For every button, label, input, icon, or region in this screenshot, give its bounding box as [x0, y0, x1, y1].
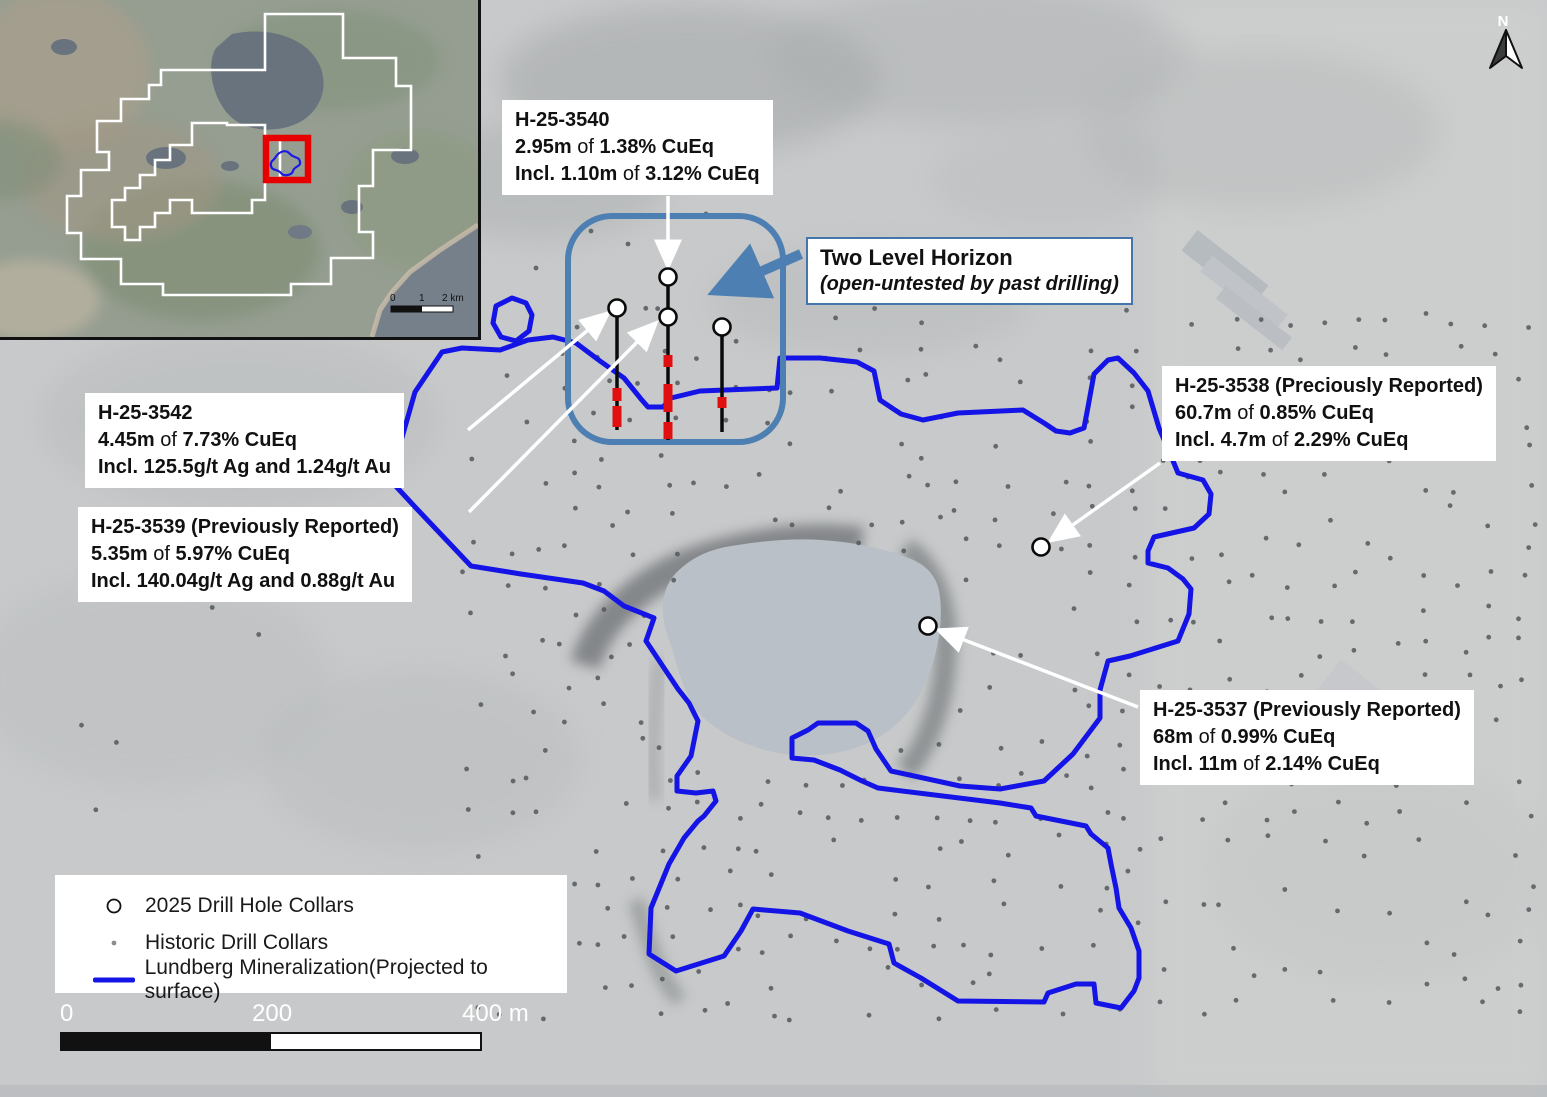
- historic-collar-dot: [1265, 818, 1270, 823]
- historic-collar-dot: [919, 347, 924, 352]
- historic-collar-dot: [907, 474, 912, 479]
- historic-collar-dot: [575, 325, 580, 330]
- historic-collar-dot: [541, 1017, 546, 1022]
- historic-collar-dot: [1517, 779, 1522, 784]
- historic-collar-dot: [1130, 488, 1135, 493]
- callout-h-25-3540: H-25-3540 2.95m of 1.38% CuEq Incl. 1.10…: [502, 100, 773, 195]
- scalebar-bar: [60, 1032, 482, 1051]
- historic-collar-dot: [971, 980, 976, 985]
- mineralized-interval: [664, 384, 673, 412]
- historic-collar-dot: [1064, 773, 1069, 778]
- historic-collar-dot: [769, 986, 774, 991]
- historic-collar-dot: [905, 378, 910, 383]
- historic-collar-dot: [1105, 886, 1110, 891]
- historic-collar-dot: [1218, 470, 1223, 475]
- historic-collar-dot: [1318, 970, 1323, 975]
- historic-collar-dot: [992, 878, 997, 883]
- historic-collar-dot: [534, 266, 539, 271]
- inset-location-map: 0 1 2 km: [0, 0, 481, 340]
- historic-collar-dot: [1087, 543, 1092, 548]
- historic-collar-dot: [734, 339, 739, 344]
- historic-collar-dot: [1202, 1012, 1207, 1017]
- historic-collar-dot: [589, 229, 594, 234]
- historic-collar-dot: [534, 809, 539, 814]
- historic-collar-dot: [1059, 884, 1064, 889]
- historic-collar-dot: [540, 638, 545, 643]
- historic-collar-dot: [673, 416, 678, 421]
- historic-collar-dot: [757, 472, 762, 477]
- historic-collar-dot: [464, 767, 469, 772]
- historic-collar-dot: [925, 483, 930, 488]
- historic-collar-dot: [597, 485, 602, 490]
- historic-collar-dot: [1531, 884, 1536, 889]
- inset-satellite-basemap: [0, 0, 478, 337]
- mineralization-line-icon: [83, 976, 145, 984]
- historic-collar-dot: [826, 815, 831, 820]
- historic-collar-dot: [769, 872, 774, 877]
- historic-collar-dot: [895, 815, 900, 820]
- legend-label: Lundberg Mineralization(Projected to sur…: [145, 956, 567, 1004]
- historic-collar-dot: [659, 1011, 664, 1016]
- historic-collar-dot: [1480, 999, 1485, 1004]
- historic-collar-dot: [760, 950, 765, 955]
- historic-collar-dot: [1120, 709, 1125, 714]
- historic-collar-dot: [919, 320, 924, 325]
- historic-collar-dot: [1299, 673, 1304, 678]
- historic-collar-dot: [557, 642, 562, 647]
- historic-collar-dot: [708, 907, 713, 912]
- historic-collar-dot: [1455, 583, 1460, 588]
- historic-collar-dot: [937, 917, 942, 922]
- historic-collar-dot: [1089, 349, 1094, 354]
- historic-collar-dot: [572, 439, 577, 444]
- historic-collar-dot: [1332, 584, 1337, 589]
- historic-collar-dot: [703, 1008, 708, 1013]
- historic-collar-dot: [1323, 839, 1328, 844]
- historic-collar-dot: [622, 934, 627, 939]
- historic-collar-dot: [661, 849, 666, 854]
- historic-collar-dot: [869, 523, 874, 528]
- included-intercept-line: Incl. 1.10m of 3.12% CuEq: [515, 161, 760, 188]
- historic-collar-dot: [1138, 847, 1143, 852]
- historic-collar-dot: [510, 552, 515, 557]
- historic-collar-dot: [591, 411, 596, 416]
- historic-collar-dot: [510, 671, 515, 676]
- historic-collar-dot: [1486, 913, 1491, 918]
- historic-collar-dot: [1085, 754, 1090, 759]
- historic-collar-dot: [900, 520, 905, 525]
- historic-collar-dot: [1002, 902, 1007, 907]
- historic-collar-dot: [665, 905, 670, 910]
- scalebar-label-0: 0: [60, 1000, 73, 1028]
- historic-collar-dot: [1098, 908, 1103, 913]
- historic-collar-dot: [675, 552, 680, 557]
- svg-text:2 km: 2 km: [442, 293, 464, 304]
- historic-collar-dot: [1135, 619, 1140, 624]
- historic-collar-dot: [1317, 654, 1322, 659]
- historic-collar-dot: [503, 654, 508, 659]
- drill-hole-id: H-25-3542: [98, 400, 391, 427]
- historic-collar-dot: [838, 489, 843, 494]
- historic-collar-dot: [1388, 556, 1393, 561]
- historic-collar-dot: [1219, 552, 1224, 557]
- historic-collar-dot: [738, 816, 743, 821]
- historic-collar-dot: [1328, 518, 1333, 523]
- scalebar-label-200: 200: [252, 1000, 292, 1028]
- historic-collar-dot: [595, 676, 600, 681]
- historic-collar-dot: [1163, 899, 1168, 904]
- historic-collar-dot: [1353, 345, 1358, 350]
- historic-collar-dot: [629, 983, 634, 988]
- historic-collar-dot: [1464, 899, 1469, 904]
- historic-collar-dot: [738, 903, 743, 908]
- historic-collar-dot: [573, 506, 578, 511]
- intercept-line: 60.7m of 0.85% CuEq: [1175, 400, 1483, 427]
- historic-collar-dot: [1523, 573, 1528, 578]
- historic-collar-dot: [1223, 800, 1228, 805]
- historic-collar-dot: [1089, 786, 1094, 791]
- historic-collar-dot: [1019, 771, 1024, 776]
- historic-collar-dot: [872, 306, 877, 311]
- historic-collar-dot: [1423, 488, 1428, 493]
- historic-collar-dot: [724, 418, 729, 423]
- historic-collar-dot: [964, 536, 969, 541]
- historic-collar-dot: [511, 779, 516, 784]
- historic-collar-dot: [1018, 653, 1023, 658]
- historic-collar-dot: [987, 685, 992, 690]
- historic-collar-dot: [1489, 569, 1494, 574]
- historic-collar-dot: [1486, 635, 1491, 640]
- historic-collar-dot: [1322, 320, 1327, 325]
- historic-collar-dot: [993, 518, 998, 523]
- historic-collar-dot: [1498, 684, 1503, 689]
- historic-collar-dot: [695, 770, 700, 775]
- historic-collar-dot: [660, 977, 665, 982]
- historic-collar-dot: [1086, 703, 1091, 708]
- historic-collar-dot: [754, 849, 759, 854]
- historic-collar-dot: [1526, 907, 1531, 912]
- historic-collar-dot: [572, 471, 577, 476]
- historic-collar-dot: [599, 457, 604, 462]
- historic-collar-dot: [1298, 357, 1303, 362]
- historic-collar-dot: [994, 1007, 999, 1012]
- historic-collar-dot: [1518, 939, 1523, 944]
- historic-collar-dot: [1006, 484, 1011, 489]
- historic-collar-dot: [635, 381, 640, 386]
- historic-collar-dot: [1285, 585, 1290, 590]
- mineralized-interval: [613, 406, 622, 427]
- svg-text:0: 0: [390, 293, 396, 304]
- historic-collar-dot: [1234, 998, 1239, 1003]
- historic-collar-dot: [1353, 570, 1358, 575]
- historic-collar-dot: [867, 1013, 872, 1018]
- historic-collar-dot: [655, 306, 660, 311]
- historic-collar-dot: [562, 543, 567, 548]
- historic-collar-dot: [1158, 836, 1163, 841]
- historic-collar-dot: [840, 783, 845, 788]
- historic-collar-dot: [596, 942, 601, 947]
- historic-collar-dot: [1134, 349, 1139, 354]
- historic-collar-dot: [1296, 542, 1301, 547]
- historic-collar-dot: [919, 456, 924, 461]
- historic-collar-dot: [1533, 522, 1538, 527]
- historic-collar-dot: [1227, 579, 1232, 584]
- historic-collar-dot: [759, 802, 764, 807]
- historic-collar-dot: [643, 306, 648, 311]
- historic-collar-dot: [935, 816, 940, 821]
- historic-collar-dot: [1040, 739, 1045, 744]
- historic-collar-dot: [93, 807, 98, 812]
- historic-collar-dot: [1006, 853, 1011, 858]
- historic-collar-dot: [525, 420, 530, 425]
- historic-collar-dot: [1190, 556, 1195, 561]
- historic-collar-dot: [667, 483, 672, 488]
- historic-collar-dot: [630, 876, 635, 881]
- historic-collar-dot: [1425, 941, 1430, 946]
- historic-collar-dot: [1163, 506, 1168, 511]
- historic-collar-dot: [671, 578, 676, 583]
- historic-collar-dot: [1482, 323, 1487, 328]
- historic-collar-dot: [596, 883, 601, 888]
- collar-historic-icon: [83, 934, 145, 952]
- historic-collar-dot: [1423, 639, 1428, 644]
- historic-collar-dot: [886, 965, 891, 970]
- historic-collar-dot: [1362, 854, 1367, 859]
- historic-collar-dot: [1285, 616, 1290, 621]
- historic-collar-dot: [1526, 545, 1531, 550]
- historic-collar-dot: [476, 854, 481, 859]
- historic-collar-dot: [1529, 814, 1534, 819]
- historic-collar-dot: [787, 1018, 792, 1023]
- historic-collar-dot: [1494, 717, 1499, 722]
- historic-collar-dot: [114, 740, 119, 745]
- historic-collar-dot: [1018, 380, 1023, 385]
- historic-collar-dot: [833, 316, 838, 321]
- historic-collar-dot: [543, 586, 548, 591]
- historic-collar-dot: [471, 540, 476, 545]
- historic-collar-dot: [1124, 308, 1129, 313]
- historic-collar-dot: [1350, 619, 1355, 624]
- historic-collar-dot: [1162, 967, 1167, 972]
- legend-item-mineralization: Lundberg Mineralization(Projected to sur…: [83, 963, 567, 997]
- historic-collar-dot: [1095, 651, 1100, 656]
- historic-collar-dot: [659, 453, 664, 458]
- historic-collar-dot: [627, 418, 632, 423]
- historic-collar-dot: [788, 441, 793, 446]
- historic-collar-dot: [756, 913, 761, 918]
- historic-collar-dot: [1059, 547, 1064, 552]
- mineralized-interval: [664, 422, 673, 439]
- historic-collar-dot: [1106, 810, 1111, 815]
- historic-collar-dot: [603, 985, 608, 990]
- historic-collar-dot: [536, 547, 541, 552]
- historic-collar-dot: [1282, 490, 1287, 495]
- historic-collar-dot: [1396, 641, 1401, 646]
- historic-collar-dot: [1322, 472, 1327, 477]
- horizon-title: Two Level Horizon: [820, 244, 1119, 272]
- drill-hole-id: H-25-3539 (Previously Reported): [91, 514, 399, 541]
- historic-collar-dot: [1133, 506, 1138, 511]
- historic-collar-dot: [1464, 650, 1469, 655]
- historic-collar-dot: [746, 260, 751, 265]
- historic-collar-dot: [1527, 443, 1532, 448]
- historic-collar-dot: [577, 941, 582, 946]
- historic-collar-dot: [511, 810, 516, 815]
- historic-collar-dot: [1168, 618, 1173, 623]
- historic-collar-dot: [469, 457, 474, 462]
- historic-collar-dot: [1189, 322, 1194, 327]
- historic-collar-dot: [1268, 348, 1273, 353]
- legend-item-historic-collars: Historic Drill Collars: [83, 926, 567, 960]
- historic-collar-dot: [901, 549, 906, 554]
- historic-collar-dot: [899, 748, 904, 753]
- historic-collar-dot: [859, 818, 864, 823]
- historic-collar-dot: [937, 742, 942, 747]
- historic-collar-dot: [1397, 809, 1402, 814]
- mineralized-interval: [718, 397, 727, 408]
- historic-collar-dot: [987, 972, 992, 977]
- intercept-line: 4.45m of 7.73% CuEq: [98, 427, 391, 454]
- historic-collar-dot: [1264, 536, 1269, 541]
- historic-collar-dot: [1387, 1000, 1392, 1005]
- intercept-line: 68m of 0.99% CuEq: [1153, 724, 1461, 751]
- historic-collar-dot: [1496, 986, 1501, 991]
- historic-collar-dot: [1121, 816, 1126, 821]
- historic-collar-dot: [1064, 480, 1069, 485]
- historic-collar-dot: [657, 745, 662, 750]
- historic-collar-dot: [1485, 524, 1490, 529]
- historic-collar-dot: [626, 242, 631, 247]
- drill-collar-2025: [660, 269, 677, 286]
- historic-collar-dot: [668, 778, 673, 783]
- historic-collar-dot: [666, 806, 671, 811]
- historic-collar-dot: [772, 1014, 777, 1019]
- historic-collar-dot: [1464, 800, 1469, 805]
- historic-collar-dot: [696, 969, 701, 974]
- historic-collar-dot: [937, 1016, 942, 1021]
- north-arrow: N: [1480, 8, 1530, 78]
- historic-collar-dot: [631, 552, 636, 557]
- historic-collar-dot: [1051, 511, 1056, 516]
- historic-collar-dot: [1524, 425, 1529, 430]
- historic-collar-dot: [1493, 352, 1498, 357]
- historic-collar-dot: [531, 710, 536, 715]
- historic-collar-dot: [1127, 583, 1132, 588]
- historic-collar-dot: [466, 807, 471, 812]
- historic-collar-dot: [1448, 503, 1453, 508]
- historic-collar-dot: [572, 882, 577, 887]
- historic-collar-dot: [919, 983, 924, 988]
- drill-hole-id: H-25-3540: [515, 107, 760, 134]
- historic-collar-dot: [790, 523, 795, 528]
- historic-collar-dot: [607, 378, 612, 383]
- historic-collar-dot: [1365, 541, 1370, 546]
- historic-collar-dot: [1513, 853, 1518, 858]
- historic-collar-dot: [1202, 902, 1207, 907]
- historic-collar-dot: [640, 736, 645, 741]
- historic-collar-dot: [670, 511, 675, 516]
- historic-collar-dot: [1088, 570, 1093, 575]
- historic-collar-dot: [968, 818, 973, 823]
- historic-collar-dot: [961, 943, 966, 948]
- historic-collar-dot: [1136, 920, 1141, 925]
- historic-collar-dot: [1331, 998, 1336, 1003]
- historic-collar-dot: [893, 912, 898, 917]
- historic-collar-dot: [1091, 943, 1096, 948]
- historic-collar-dot: [1158, 1000, 1163, 1005]
- historic-collar-dot: [675, 381, 680, 386]
- historic-collar-dot: [736, 846, 741, 851]
- callout-h-25-3537: H-25-3537 (Previously Reported) 68m of 0…: [1140, 690, 1474, 785]
- historic-collar-dot: [964, 578, 969, 583]
- historic-collar-dot: [931, 944, 936, 949]
- scalebar: 0 200 400 m: [60, 1000, 540, 1051]
- drill-collar-2025: [714, 319, 731, 336]
- historic-collar-dot: [1452, 952, 1457, 957]
- historic-collar-dot: [993, 444, 998, 449]
- historic-collar-dot: [999, 746, 1004, 751]
- historic-collar-dot: [562, 720, 567, 725]
- historic-collar-dot: [1217, 639, 1222, 644]
- mineralized-interval: [664, 355, 673, 367]
- historic-collar-dot: [1451, 490, 1456, 495]
- historic-collar-dot: [1288, 323, 1293, 328]
- historic-collar-dot: [1516, 636, 1521, 641]
- historic-collar-dot: [1387, 911, 1392, 916]
- historic-collar-dot: [1117, 743, 1122, 748]
- historic-collar-dot: [1087, 484, 1092, 489]
- historic-collar-dot: [895, 947, 900, 952]
- historic-collar-dot: [827, 505, 832, 510]
- callout-h-25-3539: H-25-3539 (Previously Reported) 5.35m of…: [78, 507, 412, 602]
- historic-collar-dot: [479, 702, 484, 707]
- historic-collar-dot: [973, 344, 978, 349]
- historic-collar-dot: [1421, 608, 1426, 613]
- historic-collar-dot: [1227, 677, 1232, 682]
- drill-results-map: 0 1 2 km H-25-3540 2.95m of 1.38% CuEq I…: [0, 0, 1547, 1097]
- included-intercept-line: Incl. 140.04g/t Ag and 0.88g/t Au: [91, 568, 399, 595]
- historic-collar-dot: [1121, 767, 1126, 772]
- historic-collar-dot: [695, 800, 700, 805]
- scalebar-label-400m: 400 m: [462, 1000, 529, 1028]
- historic-collar-dot: [1486, 604, 1491, 609]
- mineralized-interval: [613, 388, 622, 401]
- historic-collar-dot: [1126, 869, 1131, 874]
- two-level-horizon-note: Two Level Horizon (open-untested by past…: [806, 237, 1133, 305]
- historic-collar-dot: [788, 934, 793, 939]
- historic-collar-dot: [1516, 616, 1521, 621]
- historic-collar-dot: [594, 849, 599, 854]
- historic-collar-dot: [468, 611, 473, 616]
- historic-collar-dot: [210, 605, 215, 610]
- callout-h-25-3542: H-25-3542 4.45m of 7.73% CuEq Incl. 125.…: [85, 393, 404, 488]
- historic-collar-dot: [923, 372, 928, 377]
- historic-collar-dot: [543, 748, 548, 753]
- historic-collar-dot: [1130, 404, 1135, 409]
- historic-collar-dot: [893, 877, 898, 882]
- historic-collar-dot: [1519, 983, 1524, 988]
- historic-collar-dot: [1319, 619, 1324, 624]
- historic-collar-dot: [1383, 318, 1388, 323]
- callout-h-25-3538: H-25-3538 (Preciously Reported) 60.7m of…: [1162, 366, 1496, 461]
- historic-collar-dot: [1061, 1012, 1066, 1017]
- historic-collar-dot: [524, 776, 529, 781]
- historic-collar-dot: [736, 947, 741, 952]
- svg-text:1: 1: [419, 293, 425, 304]
- historic-collar-dot: [1259, 317, 1264, 322]
- included-intercept-line: Incl. 125.5g/t Ag and 1.24g/t Au: [98, 454, 391, 481]
- historic-collar-dot: [675, 877, 680, 882]
